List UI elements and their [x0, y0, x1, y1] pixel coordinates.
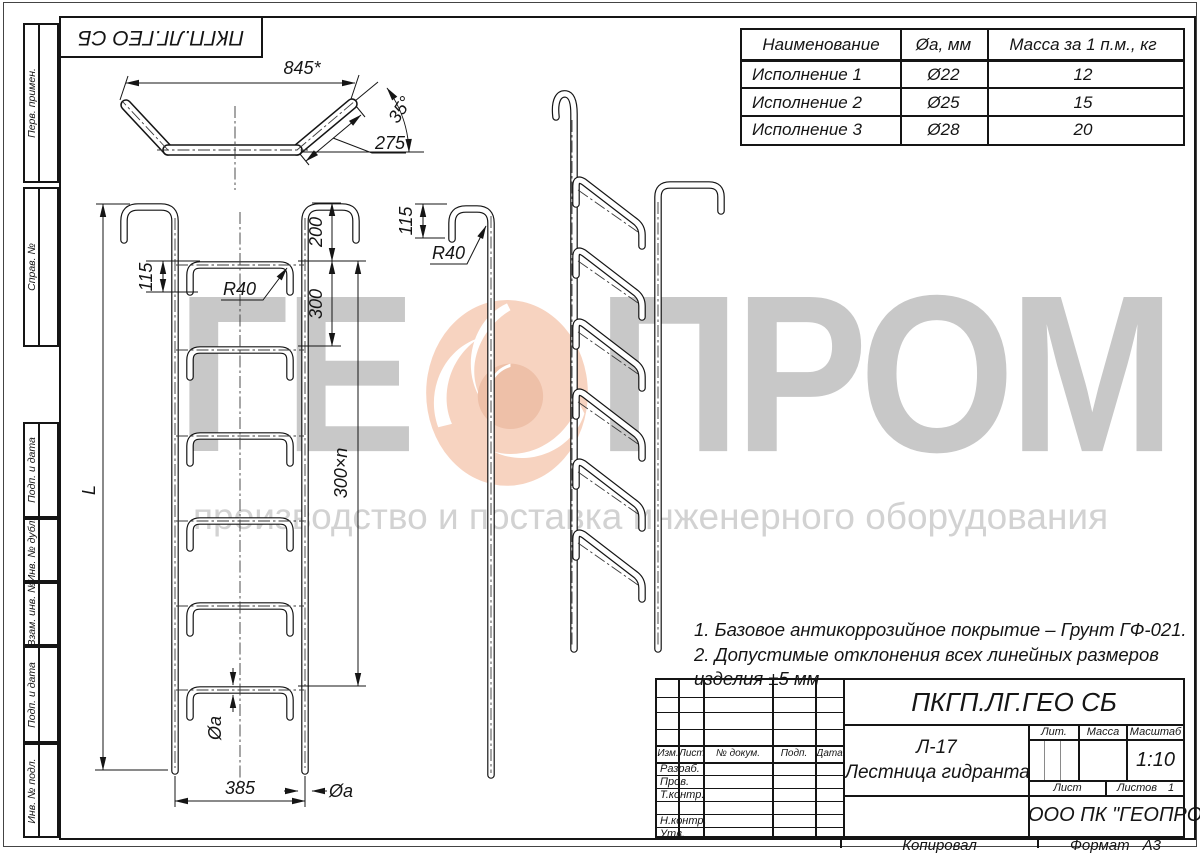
- stamp-divider: [38, 745, 40, 836]
- tb-scale-value: 1:10: [1128, 741, 1183, 780]
- spec-row-mass: 15: [987, 89, 1179, 116]
- margin-stamp-podp-data-1: Подп. и дата: [23, 422, 59, 518]
- tb-masshtab-label: Масштаб: [1128, 725, 1183, 739]
- spec-row-diameter: Ø25: [900, 89, 987, 116]
- footer-format-value: А3: [1143, 837, 1161, 854]
- spec-row-name: Исполнение 2: [752, 89, 900, 116]
- margin-stamp-label: Подп. и дата: [26, 662, 38, 728]
- note-line-1: 1. Базовое антикоррозийное покрытие – Гр…: [694, 618, 1200, 643]
- tb-col-podp: Подп.: [773, 746, 815, 762]
- tb-row-nkontr: Н.контр.: [660, 815, 704, 827]
- tb-document-code: ПКГП.ЛГ.ГЕО СБ: [845, 680, 1183, 724]
- tb-line: [657, 697, 845, 698]
- margin-stamp-inv-dubl: Инв. № дубл.: [23, 518, 59, 582]
- tb-col-data: Дата: [816, 746, 843, 762]
- stamp-divider: [38, 584, 40, 644]
- spec-row-name: Исполнение 1: [752, 61, 900, 88]
- spec-row-mass: 20: [987, 117, 1179, 143]
- tb-col-izm: Изм.: [657, 746, 679, 762]
- stamp-divider: [38, 189, 40, 345]
- margin-stamp-label: Подп. и дата: [26, 437, 38, 503]
- margin-stamp-label: Взам. инв. №: [26, 582, 38, 647]
- tb-line: [657, 712, 845, 713]
- tb-list-label: Лист: [1030, 781, 1105, 795]
- tb-lit-label: Лит.: [1030, 725, 1078, 739]
- tb-col-list: Лист: [679, 746, 703, 762]
- spec-row-name: Исполнение 3: [752, 117, 900, 143]
- tb-line: [657, 729, 845, 730]
- footer-format-label: Формат: [1070, 837, 1130, 854]
- spec-header-diameter: Øа, мм: [900, 30, 987, 59]
- tb-row-tkontr: Т.контр.: [660, 789, 704, 801]
- stamp-divider: [38, 648, 40, 741]
- tb-doc-name: Л-17 Лестница гидранта: [845, 735, 1028, 785]
- tb-row-prov: Пров.: [660, 776, 704, 788]
- tb-doc-number: Л-17: [845, 735, 1028, 760]
- margin-stamp-perv-primen: Перв. примен.: [23, 23, 59, 183]
- margin-stamp-sprav-no: Справ. №: [23, 187, 59, 347]
- tb-line: [657, 801, 845, 802]
- margin-stamp-label: Инв. № дубл.: [26, 518, 38, 583]
- spec-header-name: Наименование: [742, 30, 900, 59]
- corner-code-box: ПКГП.ЛГ.ГЕО СБ: [59, 16, 263, 58]
- drawing-sheet: { "stamp": { "code": "ПКГП.ЛГ.ГЕО СБ", "…: [0, 0, 1200, 850]
- tb-doc-title: Лестница гидранта: [845, 760, 1028, 785]
- title-block: Изм. Лист № докум. Подп. Дата Разраб. Пр…: [655, 678, 1185, 838]
- tb-row-razrab: Разраб.: [660, 763, 704, 775]
- margin-stamp-label: Инв. № подл.: [26, 758, 38, 823]
- margin-stamp-inv-podl: Инв. № подл.: [23, 743, 59, 838]
- stamp-divider: [38, 520, 40, 580]
- corner-code-text: ПКГП.ЛГ.ГЕО СБ: [78, 25, 244, 49]
- tb-col-docum: № докум.: [704, 746, 772, 762]
- margin-stamp-label: Справ. №: [26, 243, 38, 291]
- stamp-divider: [38, 25, 40, 181]
- spec-row-diameter: Ø28: [900, 117, 987, 143]
- spec-header-mass: Масса за 1 п.м., кг: [987, 30, 1179, 59]
- tb-row-utv: Утв.: [660, 828, 704, 840]
- tb-listov-value: 1: [1162, 781, 1180, 795]
- spec-table: Наименование Øа, мм Масса за 1 п.м., кг …: [740, 28, 1185, 146]
- spec-row-diameter: Ø22: [900, 61, 987, 88]
- tb-line: [1044, 739, 1045, 780]
- tb-company: ООО ПК "ГЕОПРОМ": [1028, 795, 1183, 836]
- tb-line: [1060, 739, 1061, 780]
- footer-format: Формат А3: [1038, 837, 1185, 854]
- margin-stamp-podp-data-2: Подп. и дата: [23, 646, 59, 743]
- stamp-divider: [38, 424, 40, 516]
- footer-kopiroval: Копировал: [841, 837, 1038, 854]
- tb-massa-label: Масса: [1080, 725, 1126, 739]
- margin-stamp-label: Перв. примен.: [26, 68, 38, 138]
- margin-stamp-vzam-inv: Взам. инв. №: [23, 582, 59, 646]
- tb-listov-label: Листов: [1107, 781, 1167, 795]
- spec-row-mass: 12: [987, 61, 1179, 88]
